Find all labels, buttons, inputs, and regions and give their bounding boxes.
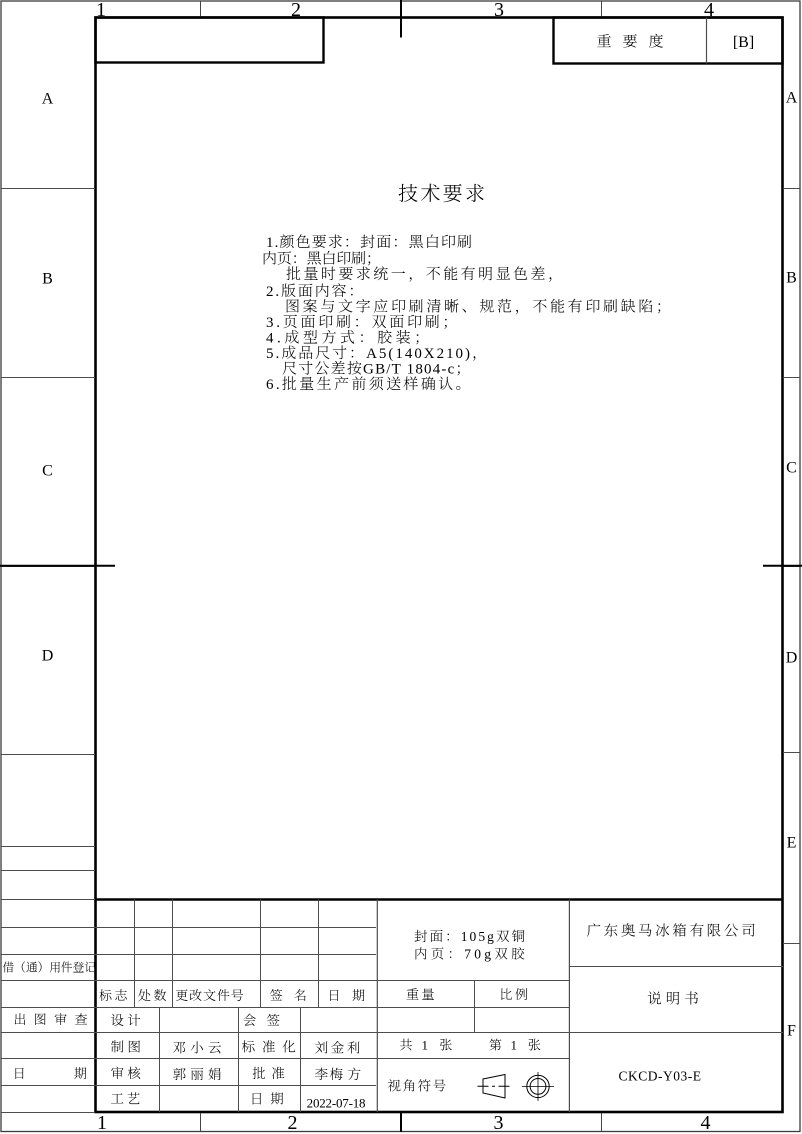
- svg-text:E: E: [787, 835, 797, 852]
- svg-text:2: 2: [288, 1112, 298, 1134]
- svg-text:尺寸公差按GB/T 1804-c；: 尺寸公差按GB/T 1804-c；: [282, 361, 471, 378]
- svg-text:说明书: 说明书: [647, 991, 703, 1008]
- svg-text:郭丽娟: 郭丽娟: [173, 1067, 222, 1082]
- svg-text:邓小云: 邓小云: [173, 1041, 222, 1056]
- svg-text:标准化: 标准化: [242, 1040, 296, 1055]
- svg-text:[B]: [B]: [733, 34, 754, 51]
- svg-text:1: 1: [97, 1112, 107, 1134]
- svg-text:1: 1: [96, 0, 106, 21]
- svg-text:6.批量生产前须送样确认。: 6.批量生产前须送样确认。: [266, 376, 471, 393]
- svg-text:3: 3: [494, 0, 504, 21]
- svg-text:4: 4: [701, 1112, 711, 1134]
- svg-text:4: 4: [704, 0, 714, 21]
- svg-text:标志: 标志: [99, 988, 130, 1003]
- svg-text:借（通）用件登记: 借（通）用件登记: [3, 961, 97, 975]
- svg-text:内页：黑白印刷；: 内页：黑白印刷；: [262, 251, 381, 268]
- svg-text:3: 3: [494, 1112, 504, 1134]
- svg-text:比例: 比例: [499, 987, 530, 1002]
- svg-text:CKCD-Y03-E: CKCD-Y03-E: [619, 1069, 702, 1084]
- svg-text:A: A: [42, 91, 54, 108]
- svg-text:2: 2: [291, 0, 301, 21]
- svg-text:D: D: [42, 648, 54, 665]
- svg-text:B: B: [786, 270, 797, 287]
- svg-text:C: C: [42, 463, 53, 480]
- svg-text:李梅方: 李梅方: [315, 1067, 362, 1082]
- svg-text:2022-07-18: 2022-07-18: [307, 1096, 366, 1111]
- svg-text:刘金利: 刘金利: [315, 1041, 361, 1056]
- svg-text:2.版面内容：: 2.版面内容：: [266, 283, 364, 300]
- svg-text:F: F: [787, 1023, 796, 1040]
- svg-text:3.页面印刷：双面印刷；: 3.页面印刷：双面印刷；: [266, 314, 458, 331]
- svg-text:共1张: 共1张: [400, 1038, 453, 1053]
- svg-text:1.颜色要求：封面：黑白印刷: 1.颜色要求：封面：黑白印刷: [266, 234, 472, 251]
- svg-text:处数: 处数: [138, 988, 169, 1003]
- svg-text:更改文件号: 更改文件号: [175, 988, 244, 1003]
- svg-text:B: B: [42, 271, 53, 288]
- svg-text:视角符号: 视角符号: [388, 1079, 448, 1094]
- svg-text:重量: 重量: [406, 987, 437, 1002]
- svg-text:C: C: [786, 460, 797, 477]
- svg-text:4.成型方式：胶装；: 4.成型方式：胶装；: [266, 330, 429, 347]
- svg-text:封面：105g双铜: 封面：105g双铜: [414, 929, 525, 944]
- svg-text:A: A: [786, 90, 798, 107]
- svg-text:重要度: 重要度: [597, 34, 664, 51]
- svg-text:第1张: 第1张: [489, 1038, 541, 1053]
- svg-text:D: D: [786, 650, 798, 667]
